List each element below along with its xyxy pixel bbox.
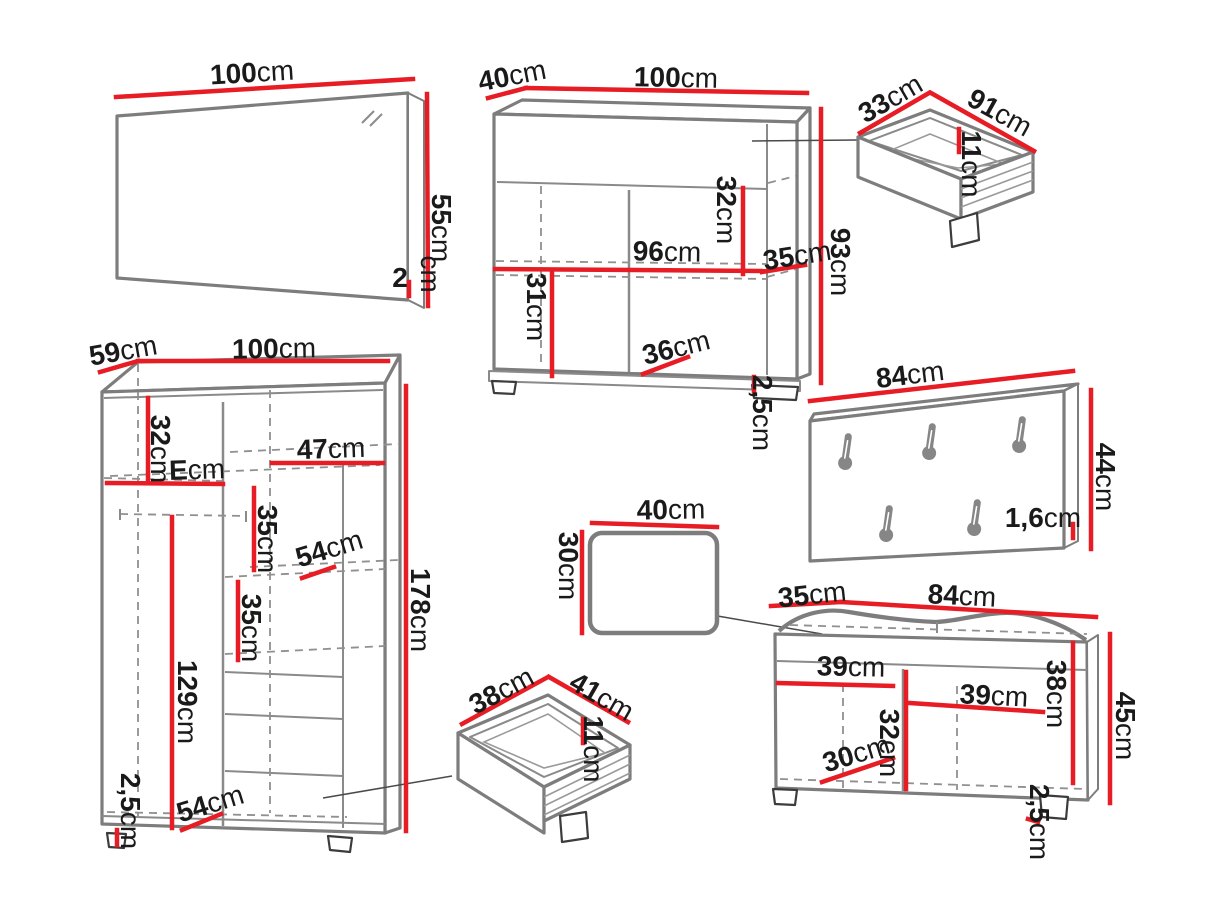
furniture-dimensions-diagram: 100cm 55cm 2 cm 40cm 100cm 93cm 96cm 3 [0,0,1214,910]
wardrobe-group: 59cm 100cm 178cm 32cm Ecm 47cm 35cm 54cm… [87,329,452,852]
wardrobe-height-label: 178cm [405,568,436,652]
mirror-height-label: 55cm [426,194,457,262]
stool-top [590,533,717,633]
wardrobe-side-face [385,355,400,833]
drawer-bottom-group: 38cm 41cm 11cm [458,661,639,842]
diagram-canvas: 100cm 55cm 2 cm 40cm 100cm 93cm 96cm 3 [0,0,1214,910]
wardrobe-47-label: 47cm [296,432,366,465]
bench-depth-label: 35cm [776,576,847,614]
wardrobe-35b-label: 35cm [236,594,267,662]
drawer-top-group: 33cm 91cm 11cm [853,68,1037,247]
chest-width-label: 100cm [634,61,719,93]
mirror-group: 100cm 55cm 2 cm [116,54,457,308]
stool-width-label: 40cm [637,493,706,525]
chest-plinth-label: 2,5cm [747,375,778,451]
bench-dashed-top [790,625,1087,634]
wardrobe-plinth-label: 2,5cm [115,773,146,849]
chest-lower-height-label: 31cm [521,273,552,341]
bench-foot-left [773,789,797,805]
drawer-top-height-label: 11cm [956,131,987,198]
chest-depth-label: 40cm [476,54,549,97]
bench-plinth-label: 2,5cm [1024,784,1055,860]
bench-39b-label: 39cm [959,678,1029,713]
drawer-bottom-foot [560,812,588,842]
chest-inner-width-dimline [495,269,764,271]
wardrobe-E-shelf-label: Ecm [168,453,225,486]
mirror-width-label: 100cm [209,54,295,90]
chest-foot-left [492,381,516,394]
coat-rack-group: 84cm 44cm 1,6cm [810,355,1121,561]
chest-inner-width-label: 96cm [632,235,701,267]
wardrobe-129-label: 129cm [172,660,203,744]
wardrobe-width-label: 100cm [232,332,317,364]
coat-rack-panel [810,391,1064,561]
bench-group: 35cm 84cm 45cm 38cm 39cm 39cm 32cm 30cm … [771,576,1141,861]
bench-height-label: 45cm [1110,692,1141,760]
bench-width-label: 84cm [927,578,997,613]
coat-rack-thickness-label: 1,6cm [1005,502,1081,533]
chest-to-drawer-leader [752,140,858,141]
mirror-depth-label-unit: cm [415,255,446,292]
chest-upper-height-label: 32cm [711,176,742,244]
stool-depth-label: 30cm [553,532,584,600]
drawer-top-foot [950,213,979,247]
drawer-bottom-height-label: 11cm [578,716,609,783]
bench-side-face [1087,635,1098,800]
coat-rack-height-label: 44cm [1090,443,1121,511]
wardrobe-foot-right [328,836,352,852]
chest-group: 40cm 100cm 93cm 96cm 32cm 35cm 31cm 36cm… [476,54,858,451]
bench-39a-dimline [778,683,893,686]
mirror-depth-label-value: 2 [392,262,408,293]
bench-39a-label: 39cm [816,650,885,682]
wardrobe-35a-label: 35cm [252,505,283,573]
bench-inner-height-label: 38cm [1041,660,1072,728]
mirror-front [117,93,408,300]
